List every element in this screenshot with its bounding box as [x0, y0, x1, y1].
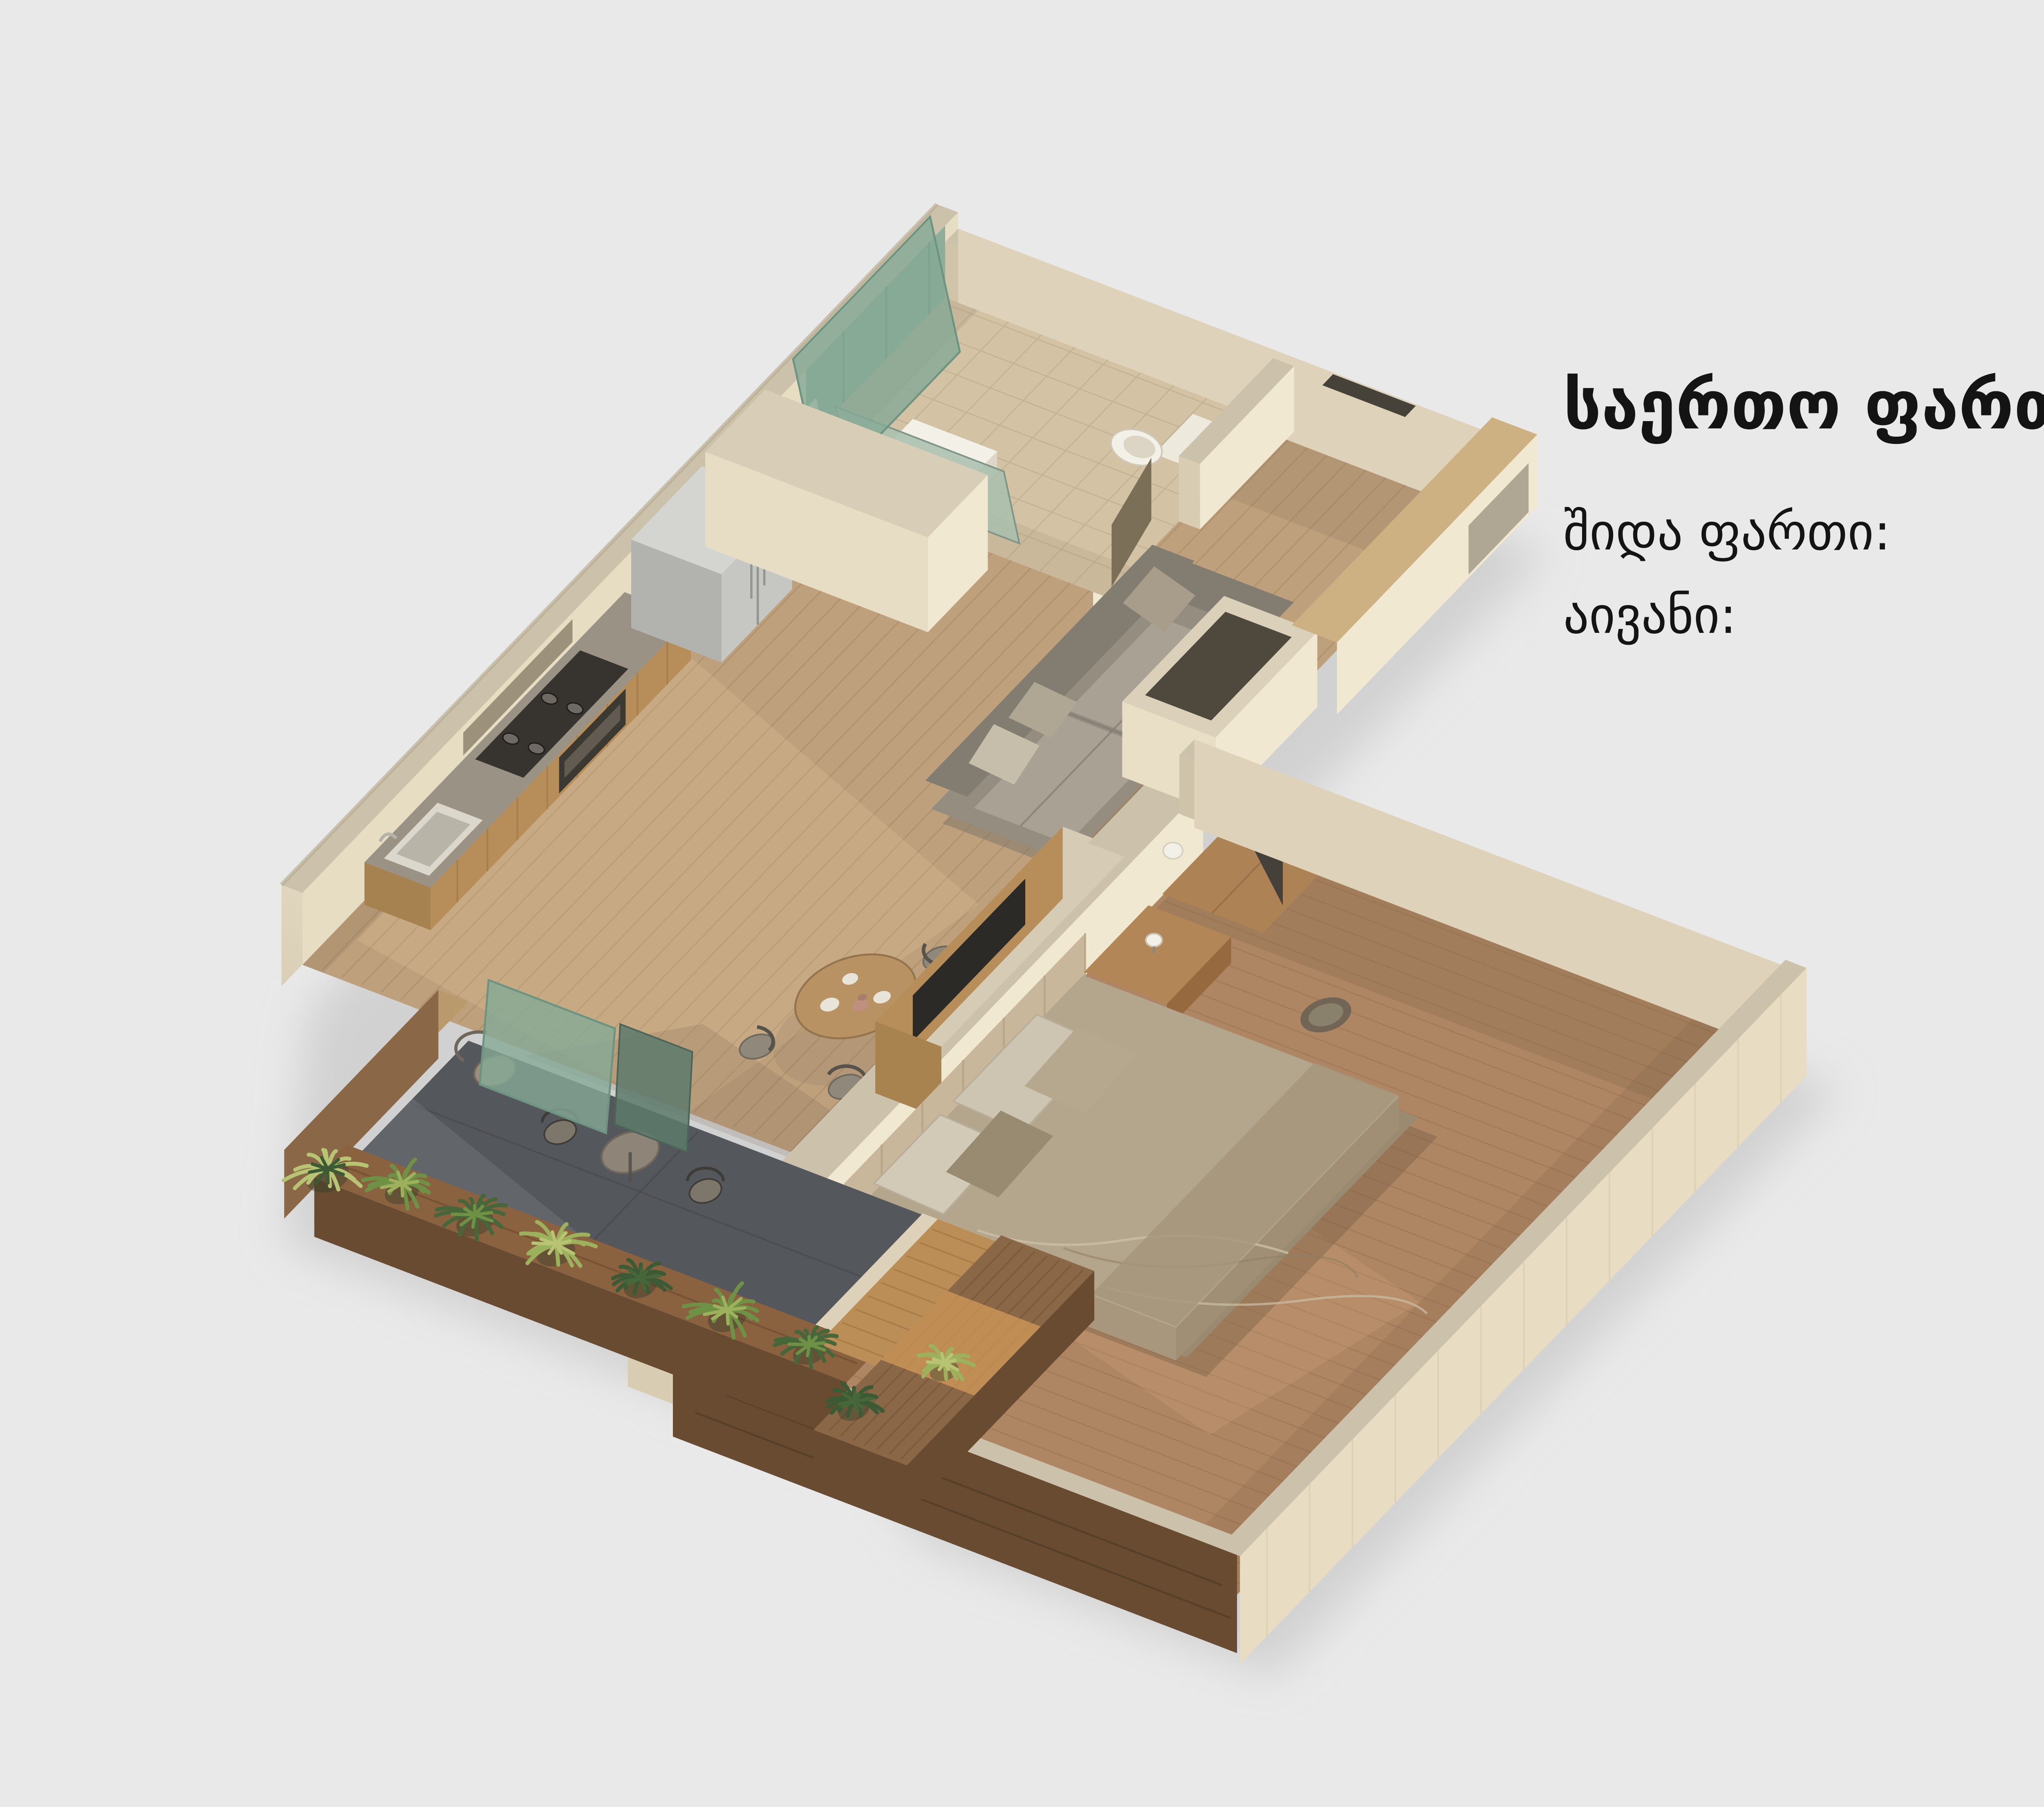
area-stats: საერთო ფართი: 43.2მ2 შიდა ფართი: 37.3მ2 … — [1563, 366, 2044, 668]
page: საერთო ფართი: 43.2მ2 შიდა ფართი: 37.3მ2 … — [0, 0, 2044, 1807]
floorplan-illustration — [0, 0, 2044, 1807]
total-area-row: საერთო ფართი: 43.2მ2 — [1563, 366, 2044, 444]
balcony-area-row: აივანი: 5.9მ2 — [1563, 584, 2044, 650]
total-area-label: საერთო ფართი: — [1563, 368, 2044, 445]
inner-area-row: შიდა ფართი: 37.3მ2 — [1563, 500, 2044, 566]
balcony-area-label: აივანი: — [1563, 584, 1737, 650]
inner-area-label: შიდა ფართი: — [1563, 500, 1891, 566]
